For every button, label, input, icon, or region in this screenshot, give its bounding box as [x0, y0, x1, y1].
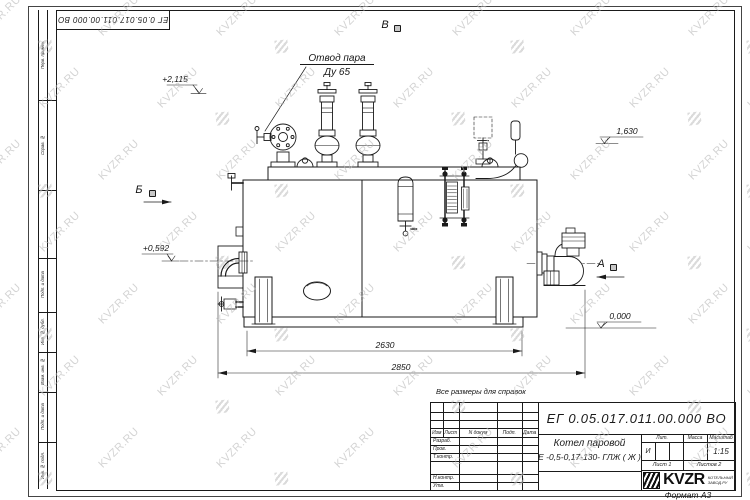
product-type: Е -0,5-0,17-130- ГЛЖ ( Ж ) — [538, 450, 641, 464]
scale-value: 1:15 — [707, 442, 735, 460]
elevation-top: +2,115 — [156, 74, 194, 84]
view-label-b: Б — [132, 184, 146, 196]
col-header-data: Дата — [522, 428, 539, 437]
view-label-v: В — [378, 19, 392, 31]
col-header-list: Лист — [443, 428, 460, 437]
view-ref-icon — [149, 190, 156, 197]
company-logo: KVZR КОТЕЛЬНЫЙ ЗАВОД.РУ — [641, 470, 735, 490]
dimension-2850: 2850 — [380, 362, 422, 372]
mass-header: Масса — [683, 434, 707, 442]
sheet-number: Лист 1 — [641, 460, 683, 470]
elevation-zero: 0,000 — [600, 311, 640, 321]
product-name: Котел паровой — [538, 436, 641, 451]
view-ref-icon — [610, 264, 617, 271]
col-header-izm: Изм — [431, 428, 443, 437]
kvzr-logo-text: KVZR — [663, 471, 705, 489]
col-header-ndoc: N докум — [459, 428, 497, 437]
doc-number: ЕГ 0.05.017.011.00.000 ВО — [538, 403, 735, 434]
kvzr-logo-icon — [643, 472, 660, 489]
steam-outlet-label: Отвод пара — [300, 53, 374, 65]
elevation-burner: +0,592 — [137, 243, 175, 253]
row-nkontr: Н.контр. — [431, 474, 461, 482]
kvzr-logo-subtext: КОТЕЛЬНЫЙ ЗАВОД.РУ — [708, 475, 733, 485]
row-tkontr: Т.контр. — [431, 453, 461, 461]
dimension-2630: 2630 — [364, 340, 406, 350]
drawing-sheet: Перв. примен. Справ. № Подп. и дата Инв.… — [0, 0, 750, 500]
lit-value: И — [641, 442, 655, 460]
col-header-podp: Подп. — [497, 428, 522, 437]
view-label-a: А — [594, 258, 608, 270]
view-ref-icon — [394, 25, 401, 32]
reference-note: Все размеры для справок — [436, 387, 546, 396]
steam-outlet-dn-label: Ду 65 — [300, 67, 374, 78]
elevation-right-top: 1,630 — [608, 126, 646, 136]
row-prov: Пров. — [431, 445, 461, 453]
lit-header: Лит. — [641, 434, 683, 442]
title-block: Изм Лист N докум Подп. Дата Разраб. Пров… — [430, 402, 736, 491]
row-utv: Утв. — [431, 482, 461, 490]
row-razrab: Разраб. — [431, 437, 461, 445]
scale-header: Масштаб — [707, 434, 735, 442]
format-note: Формат А3 — [638, 490, 738, 500]
sheets-total: Листов 2 — [683, 460, 735, 470]
